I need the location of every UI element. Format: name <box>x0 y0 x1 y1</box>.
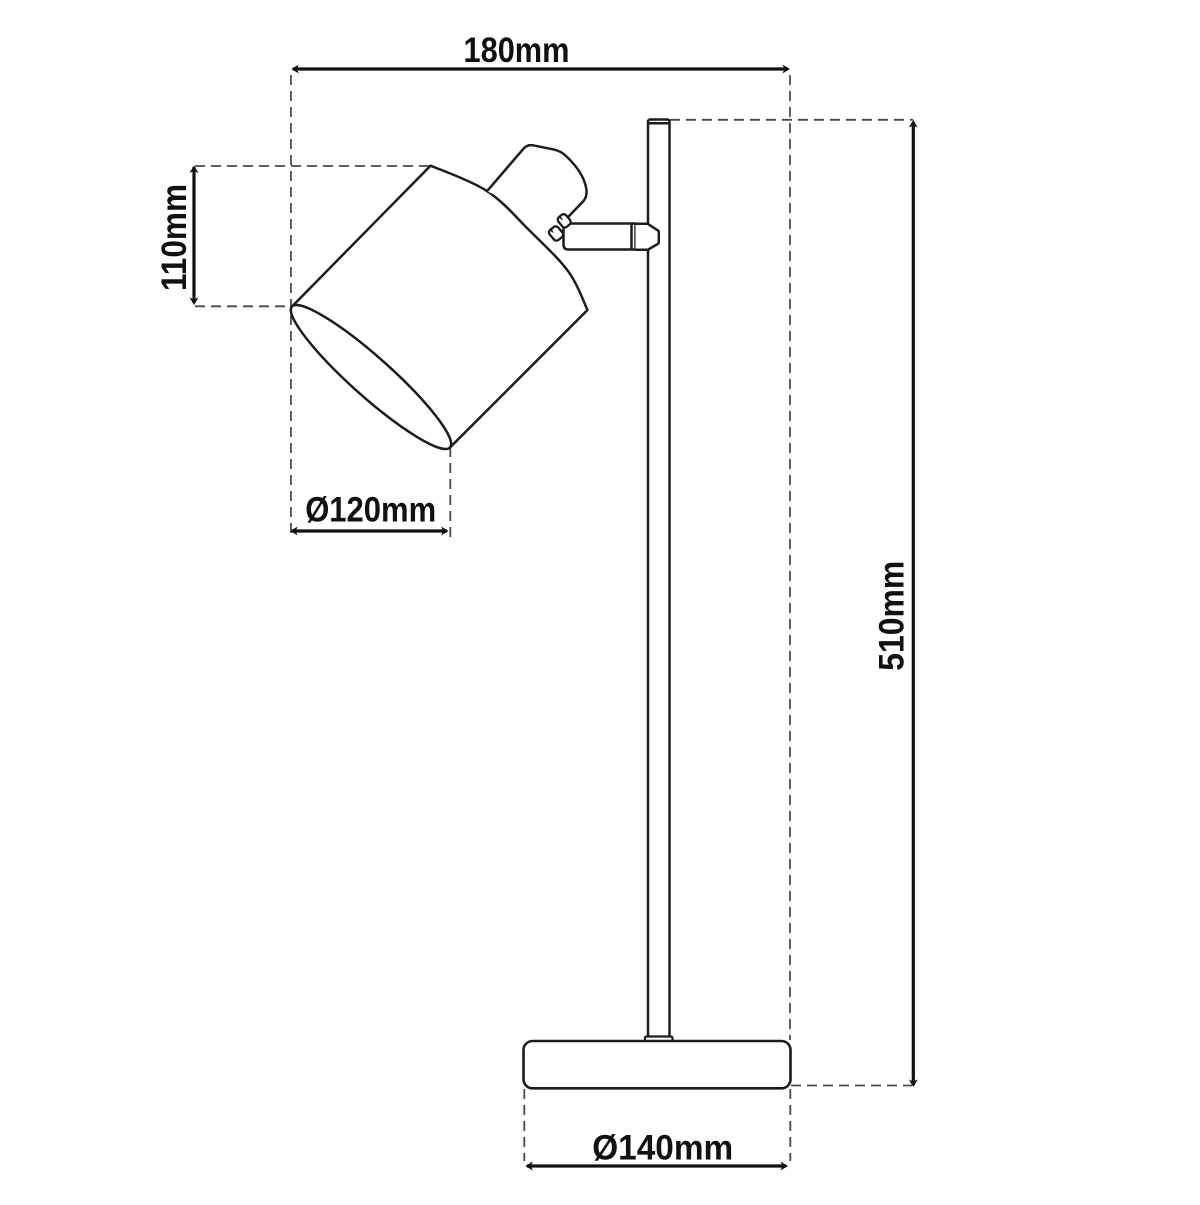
svg-text:180mm: 180mm <box>464 31 570 70</box>
svg-text:Ø120mm: Ø120mm <box>305 490 436 529</box>
svg-text:510mm: 510mm <box>873 561 912 671</box>
svg-text:110mm: 110mm <box>155 184 194 291</box>
svg-text:Ø140mm: Ø140mm <box>592 1128 733 1167</box>
